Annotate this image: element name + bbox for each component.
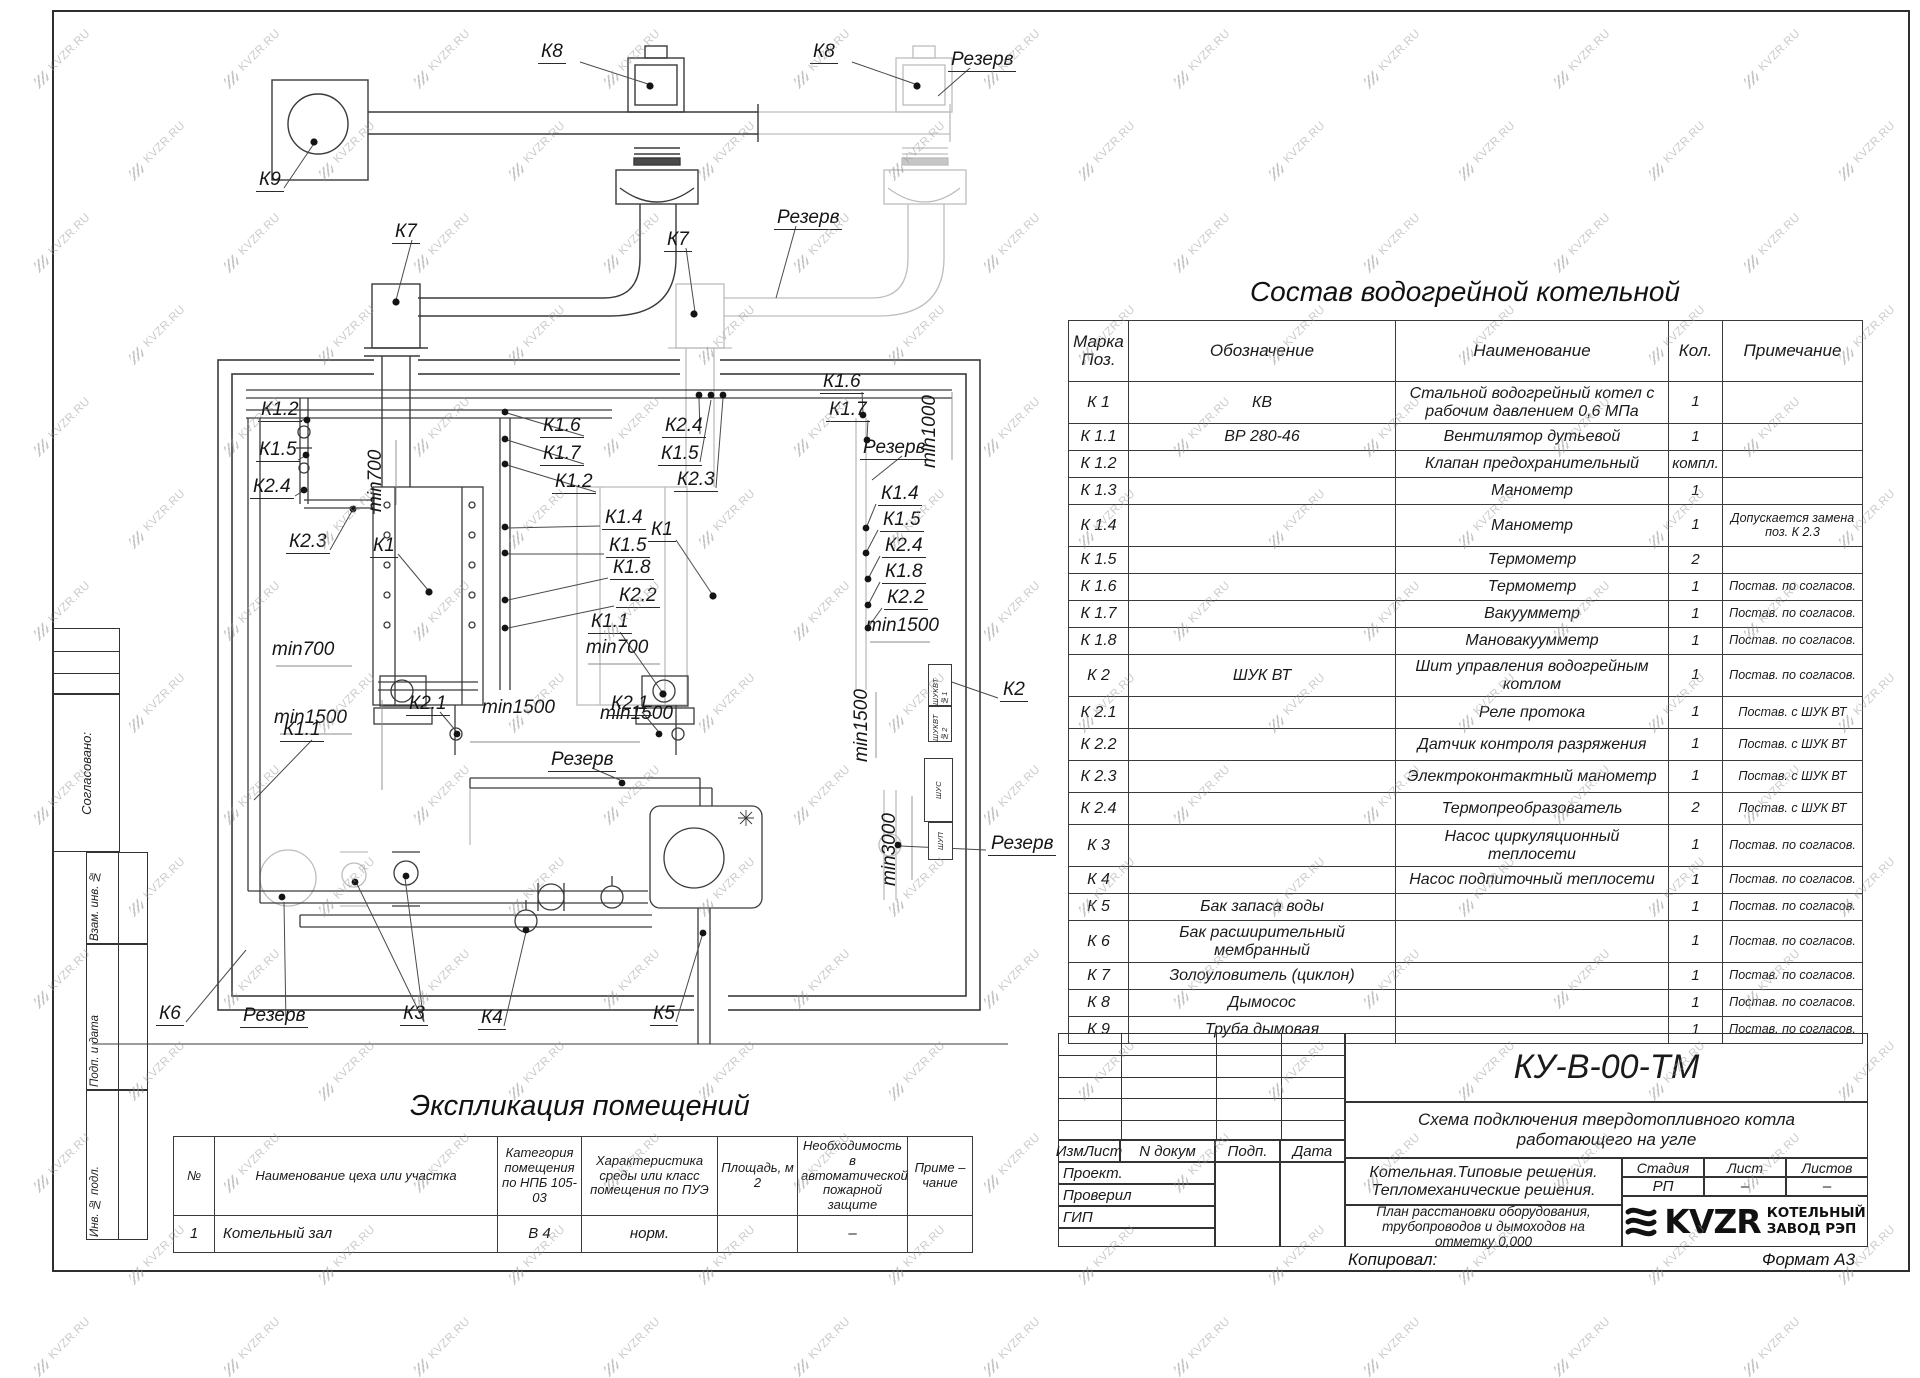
sostav-cell (1129, 825, 1396, 867)
diagram-label: К2.3 (674, 470, 718, 492)
sostav-cell: Термометр (1396, 547, 1669, 574)
sostav-row: К 2.4Термопреобразователь2Постав. с ШУК … (1069, 793, 1863, 825)
hatch-icon (223, 1357, 239, 1378)
sostav-row: К 3Насос циркуляционный теплосети1Постав… (1069, 825, 1863, 867)
sostav-cell: Постав. по согласов. (1723, 628, 1863, 655)
sostav-cell: К 6 (1069, 921, 1129, 963)
sostav-cell: Датчик контроля разряжения (1396, 729, 1669, 761)
sostav-cell: Постав. по согласов. (1723, 825, 1863, 867)
sostav-cell (1129, 793, 1396, 825)
stamp-stage-header: Стадия (1622, 1158, 1704, 1177)
sostav-row: К 1КВСтальной водогрейный котел с рабочи… (1069, 382, 1863, 424)
sostav-row: К 1.3Манометр1 (1069, 478, 1863, 505)
sostav-cell: Электроконтактный манометр (1396, 761, 1669, 793)
stamp-col-izm: ИзмЛист (1058, 1140, 1120, 1162)
sostav-cell: Постав. по согласов. (1723, 574, 1863, 601)
drawing-sheet: { "watermark": {"text": "KVZR.RU"}, "sid… (0, 0, 1920, 1280)
watermark-text: KVZR.RU (1376, 1315, 1422, 1361)
diagram-label: min700 (366, 450, 385, 512)
sostav-cell: 1 (1669, 478, 1723, 505)
diagram-label: min700 (272, 640, 334, 659)
stamp-sheets-header: Листов (1786, 1158, 1868, 1177)
sostav-cell: К 1.5 (1069, 547, 1129, 574)
diagram-label: К1.6 (820, 372, 864, 394)
sostav-cell: 1 (1669, 382, 1723, 424)
hatch-icon (33, 1357, 49, 1378)
sostav-row: К 6Бак расширительный мембранный1Постав.… (1069, 921, 1863, 963)
explication-cell-area (718, 1216, 798, 1253)
sostav-cell: Постав. по согласов. (1723, 921, 1863, 963)
control-cabinet: ШУКВТ №2 (928, 706, 952, 742)
watermark-text: KVZR.RU (426, 1315, 472, 1361)
sostav-cell (1129, 761, 1396, 793)
hatch-icon (983, 1357, 999, 1378)
stamp-sheets-value: – (1786, 1177, 1868, 1196)
control-cabinet: ШУП (928, 822, 953, 860)
explication-header-env: Характеристика среды или класс помещения… (582, 1137, 718, 1216)
sostav-cell: Мановакуумметр (1396, 628, 1669, 655)
sostav-cell: 1 (1669, 574, 1723, 601)
diagram-label: Резерв (988, 834, 1056, 856)
diagram-label: min1000 (920, 395, 939, 468)
sostav-cell (1129, 867, 1396, 894)
explication-cell-fire: – (798, 1216, 908, 1253)
diagram-label: К2.2 (616, 586, 660, 608)
explication-header-category: Категория помещения по НПБ 105-03 (498, 1137, 582, 1216)
sostav-cell: Термометр (1396, 574, 1669, 601)
sostav-cell (1129, 697, 1396, 729)
sostav-cell: Постав. с ШУК ВТ (1723, 729, 1863, 761)
diagram-label: Резерв (774, 208, 842, 230)
kvzr-company-line1: КОТЕЛЬНЫЙ (1767, 1205, 1866, 1221)
diagram-label: К1.1 (588, 612, 632, 634)
sostav-cell: К 2.2 (1069, 729, 1129, 761)
stamp-copied-label: Копировал: (1348, 1250, 1437, 1270)
stamp-solution-1: Котельная.Типовые решения. (1369, 1164, 1597, 1182)
explication-cell-category: В 4 (498, 1216, 582, 1253)
kvzr-watermark: KVZR.RU (792, 1315, 853, 1376)
stamp-empty-sign (1215, 1162, 1280, 1247)
sostav-cell: Реле протока (1396, 697, 1669, 729)
sostav-cell (1129, 729, 1396, 761)
sostav-header-row: Марка Поз. Обозначение Наименование Кол.… (1069, 321, 1863, 382)
watermark-text: KVZR.RU (616, 1315, 662, 1361)
sostav-row: К 1.7Вакуумметр1Постав. по согласов. (1069, 601, 1863, 628)
stamp-format-label: Формат А3 (1762, 1250, 1855, 1270)
kvzr-watermark: KVZR.RU (602, 1315, 663, 1376)
sostav-row: К 2.1Реле протока1Постав. с ШУК ВТ (1069, 697, 1863, 729)
sostav-cell: Золоуловитель (циклон) (1129, 963, 1396, 990)
sostav-cell: К 4 (1069, 867, 1129, 894)
sostav-cell (1723, 382, 1863, 424)
sostav-cell: Насос циркуляционный теплосети (1396, 825, 1669, 867)
sostav-cell: Вентилятор дутьевой (1396, 424, 1669, 451)
diagram-label: К8 (810, 42, 838, 64)
explication-table: № Наименование цеха или участка Категори… (173, 1136, 973, 1253)
diagram-label: Резерв (548, 750, 616, 772)
hatch-icon (793, 1357, 809, 1378)
sostav-cell: Допускается замена поз. К 2.3 (1723, 505, 1863, 547)
diagram-label: Резерв (240, 1006, 308, 1028)
kvzr-watermark: KVZR.RU (32, 1315, 93, 1376)
stamp-col-podp: Подп. (1215, 1140, 1280, 1162)
diagram-label: К2.4 (662, 416, 706, 438)
kvzr-company-name: КОТЕЛЬНЫЙ ЗАВОД РЭП (1767, 1206, 1866, 1237)
diagram-label: К1.7 (826, 400, 870, 422)
sostav-cell: ВР 280-46 (1129, 424, 1396, 451)
sostav-header-mark: Марка Поз. (1069, 321, 1129, 382)
sostav-cell (1396, 921, 1669, 963)
sostav-table: Марка Поз. Обозначение Наименование Кол.… (1068, 320, 1863, 1044)
watermark-text: KVZR.RU (1566, 1315, 1612, 1361)
diagram-label: К1.5 (606, 536, 650, 558)
stamp-col-data: Дата (1280, 1140, 1345, 1162)
sostav-row: К 2.2Датчик контроля разряжения1Постав. … (1069, 729, 1863, 761)
stamp-doc-title: Схема подключения твердотопливного котла… (1345, 1102, 1868, 1158)
hatch-icon (1743, 1357, 1759, 1378)
sostav-cell (1723, 478, 1863, 505)
diagram-label: К1.7 (540, 444, 584, 466)
explication-cell-note (908, 1216, 973, 1253)
sostav-cell: 1 (1669, 628, 1723, 655)
diagram-label: К5 (650, 1004, 678, 1026)
control-cabinet-label: ШУП (936, 832, 945, 850)
sostav-cell (1396, 990, 1669, 1017)
diagram-label: К7 (392, 222, 420, 244)
diagram-label: К2.2 (884, 588, 928, 610)
explication-header-fire: Необходимость в автоматической пожарной … (798, 1137, 908, 1216)
sostav-cell: К 1.7 (1069, 601, 1129, 628)
explication-header-row: № Наименование цеха или участка Категори… (174, 1137, 973, 1216)
explication-cell-env: норм. (582, 1216, 718, 1253)
sostav-cell (1723, 424, 1863, 451)
diagram-label: К1.6 (540, 416, 584, 438)
sostav-header-designation: Обозначение (1129, 321, 1396, 382)
stamp-role-gip: ГИП (1058, 1206, 1215, 1228)
sostav-cell: К 1 (1069, 382, 1129, 424)
sostav-table-title: Состав водогрейной котельной (1068, 276, 1862, 308)
sostav-row: К 1.1ВР 280-46Вентилятор дутьевой1 (1069, 424, 1863, 451)
diagram-label: К1.1 (280, 720, 324, 742)
sostav-cell: КВ (1129, 382, 1396, 424)
sidebar-grid (52, 628, 120, 694)
watermark-text: KVZR.RU (806, 1315, 852, 1361)
sostav-cell: компл. (1669, 451, 1723, 478)
diagram-label: К1.8 (610, 558, 654, 580)
kvzr-logo-text: KVZR (1664, 1202, 1760, 1241)
diagram-label: min1500 (866, 616, 939, 635)
sostav-row: К 2ШУК ВТШит управления водогрейным котл… (1069, 655, 1863, 697)
kvzr-watermark: KVZR.RU (982, 1315, 1043, 1376)
sostav-row: К 8Дымосос1Постав. по согласов. (1069, 990, 1863, 1017)
sostav-cell: Постав. по согласов. (1723, 990, 1863, 1017)
stamp-plan-title: План расстановки оборудования, трубопров… (1345, 1205, 1622, 1247)
kvzr-watermark: KVZR.RU (1552, 1315, 1613, 1376)
diagram-label: К3 (400, 1004, 428, 1026)
diagram-label: К2.4 (882, 536, 926, 558)
sostav-cell: К 2 (1069, 655, 1129, 697)
sostav-cell: 1 (1669, 601, 1723, 628)
stamp-logo-cell: KVZR КОТЕЛЬНЫЙ ЗАВОД РЭП (1622, 1196, 1868, 1247)
diagram-label: К1.5 (658, 444, 702, 466)
sidebar-box-vzam-label: Взам. инв. № (89, 857, 101, 941)
sostav-cell (1396, 894, 1669, 921)
control-cabinet-label: ШУКВТ №2 (931, 707, 949, 741)
stamp-role-proekt: Проект. (1058, 1162, 1215, 1184)
sostav-cell: 1 (1669, 825, 1723, 867)
watermark-text: KVZR.RU (46, 1315, 92, 1361)
diagram-label: min1500 (482, 698, 555, 717)
diagram-label: min3000 (880, 813, 899, 886)
sostav-cell: Постав. по согласов. (1723, 867, 1863, 894)
sostav-row: К 4Насос подпиточный теплосети1Постав. п… (1069, 867, 1863, 894)
kvzr-company-line2: ЗАВОД РЭП (1767, 1221, 1857, 1237)
sostav-cell: 1 (1669, 894, 1723, 921)
diagram-label: К2.3 (286, 532, 330, 554)
stamp-sheet-value: – (1704, 1177, 1786, 1196)
watermark-text: KVZR.RU (1186, 1315, 1232, 1361)
sostav-cell: К 1.6 (1069, 574, 1129, 601)
sostav-cell: Постав. по согласов. (1723, 894, 1863, 921)
sostav-cell: К 1.3 (1069, 478, 1129, 505)
sostav-cell: Насос подпиточный теплосети (1396, 867, 1669, 894)
sostav-cell (1129, 478, 1396, 505)
diagram-label: К6 (156, 1004, 184, 1026)
diagram-label: К1.2 (552, 472, 596, 494)
sostav-cell: 1 (1669, 921, 1723, 963)
watermark-text: KVZR.RU (236, 1315, 282, 1361)
sostav-cell: К 1.1 (1069, 424, 1129, 451)
stamp-role-proveril: Проверил (1058, 1184, 1215, 1206)
sostav-cell: 1 (1669, 655, 1723, 697)
sostav-cell: Постав. по согласов. (1723, 655, 1863, 697)
diagram-label: К2.1 (608, 694, 652, 716)
sostav-cell: Вакуумметр (1396, 601, 1669, 628)
diagram-label: Резерв (948, 50, 1016, 72)
sostav-cell (1129, 601, 1396, 628)
diagram-label: min1500 (852, 689, 871, 762)
explication-header-num: № (174, 1137, 215, 1216)
sostav-cell: Постав. с ШУК ВТ (1723, 761, 1863, 793)
sostav-header-note: Примечание (1723, 321, 1863, 382)
kvzr-watermark: KVZR.RU (1362, 1315, 1423, 1376)
explication-header-area: Площадь, м 2 (718, 1137, 798, 1216)
explication-cell-name: Котельный зал (215, 1216, 498, 1253)
sostav-cell: Клапан предохранительный (1396, 451, 1669, 478)
sostav-cell: 1 (1669, 505, 1723, 547)
hatch-icon (413, 1357, 429, 1378)
diagram-label: К1.8 (882, 562, 926, 584)
sostav-row: К 1.5Термометр2 (1069, 547, 1863, 574)
stamp-empty-role (1058, 1228, 1215, 1247)
sostav-header-name: Наименование (1396, 321, 1669, 382)
sostav-cell (1723, 547, 1863, 574)
sostav-cell: К 2.1 (1069, 697, 1129, 729)
sostav-cell: К 1.8 (1069, 628, 1129, 655)
sostav-cell (1396, 963, 1669, 990)
sostav-cell: К 1.2 (1069, 451, 1129, 478)
sostav-row: К 5Бак запаса воды1Постав. по согласов. (1069, 894, 1863, 921)
sostav-cell: 1 (1669, 729, 1723, 761)
sostav-cell: 1 (1669, 867, 1723, 894)
stamp-col-ndoc: N докум (1120, 1140, 1215, 1162)
sostav-cell: Термопреобразователь (1396, 793, 1669, 825)
watermark-text: KVZR.RU (1756, 1315, 1802, 1361)
sostav-cell (1129, 505, 1396, 547)
diagram-label: К9 (256, 170, 284, 192)
control-cabinet: ШУКВТ №1 (928, 664, 952, 706)
stamp-empty-date (1280, 1162, 1345, 1247)
sidebar-agreed-label: Согласовано: (79, 732, 94, 815)
sostav-cell (1129, 547, 1396, 574)
sostav-cell: Постав. по согласов. (1723, 963, 1863, 990)
sostav-cell: 1 (1669, 761, 1723, 793)
explication-title: Экспликация помещений (300, 1090, 860, 1123)
sostav-row: К 1.6Термометр1Постав. по согласов. (1069, 574, 1863, 601)
diagram-label: К1.4 (878, 484, 922, 506)
control-cabinet-label: ШУКВТ №1 (931, 665, 949, 705)
diagram-label: К8 (538, 42, 566, 64)
sostav-row: К 2.3Электроконтактный манометр1Постав. … (1069, 761, 1863, 793)
diagram-label: К4 (478, 1008, 506, 1030)
stamp-empty-grid (1058, 1033, 1345, 1140)
kvzr-logo-icon (1624, 1205, 1658, 1239)
stamp-sheet-header: Лист (1704, 1158, 1786, 1177)
sostav-cell: 1 (1669, 424, 1723, 451)
sostav-cell (1129, 628, 1396, 655)
sostav-cell: 2 (1669, 547, 1723, 574)
diagram-label: К1.2 (258, 400, 302, 422)
hatch-icon (1553, 1357, 1569, 1378)
sostav-cell: Дымосос (1129, 990, 1396, 1017)
sostav-cell (1129, 574, 1396, 601)
sostav-row: К 1.8Мановакуумметр1Постав. по согласов. (1069, 628, 1863, 655)
sidebar-box-inv-label: Инв. № подл. (89, 1095, 101, 1237)
sostav-row: К 1.2Клапан предохранительныйкомпл. (1069, 451, 1863, 478)
explication-cell-num: 1 (174, 1216, 215, 1253)
hatch-icon (603, 1357, 619, 1378)
sostav-cell: Манометр (1396, 505, 1669, 547)
sidebar-box-podp: Подп. и дата (86, 944, 148, 1090)
diagram-label: min700 (586, 638, 648, 657)
diagram-label: К1 (648, 520, 676, 542)
diagram-label: К1 (370, 536, 398, 558)
sostav-cell: Бак расширительный мембранный (1129, 921, 1396, 963)
diagram-label: К2.1 (406, 694, 450, 716)
sostav-cell: К 2.3 (1069, 761, 1129, 793)
diagram-label: К1.5 (256, 440, 300, 462)
sostav-cell: Манометр (1396, 478, 1669, 505)
sostav-cell: К 8 (1069, 990, 1129, 1017)
diagram-label: К2.4 (250, 477, 294, 499)
kvzr-watermark: KVZR.RU (222, 1315, 283, 1376)
stamp-solutions: Котельная.Типовые решения. Тепломеханиче… (1345, 1158, 1622, 1205)
sostav-cell: 1 (1669, 990, 1723, 1017)
sidebar-agreed-box: Согласовано: (52, 694, 120, 852)
sidebar-box-podp-label: Подп. и дата (89, 949, 101, 1087)
explication-header-name: Наименование цеха или участка (215, 1137, 498, 1216)
sostav-row: К 1.4Манометр1Допускается замена поз. К … (1069, 505, 1863, 547)
stamp-solution-2: Тепломеханические решения. (1372, 1182, 1596, 1200)
sostav-cell: К 1.4 (1069, 505, 1129, 547)
sostav-cell (1129, 451, 1396, 478)
diagram-label: К2 (1000, 680, 1028, 702)
sostav-row: К 7Золоуловитель (циклон)1Постав. по сог… (1069, 963, 1863, 990)
sostav-cell: 2 (1669, 793, 1723, 825)
diagram-label: К1.4 (602, 508, 646, 530)
sostav-cell: Постав. по согласов. (1723, 601, 1863, 628)
sostav-cell (1723, 451, 1863, 478)
sostav-cell: К 7 (1069, 963, 1129, 990)
control-cabinet-label: ШУС (934, 781, 943, 799)
hatch-icon (1173, 1357, 1189, 1378)
sostav-cell: 1 (1669, 963, 1723, 990)
kvzr-watermark: KVZR.RU (1172, 1315, 1233, 1376)
sostav-cell: Постав. с ШУК ВТ (1723, 697, 1863, 729)
sostav-cell: Шит управления водогрейным котлом (1396, 655, 1669, 697)
hatch-icon (1363, 1357, 1379, 1378)
sostav-cell: Постав. с ШУК ВТ (1723, 793, 1863, 825)
sostav-cell: К 3 (1069, 825, 1129, 867)
title-block: ИзмЛист N докум Подп. Дата Проект. Прове… (1058, 1033, 1868, 1247)
sostav-cell: ШУК ВТ (1129, 655, 1396, 697)
explication-header-note: Приме – чание (908, 1137, 973, 1216)
sostav-cell: Стальной водогрейный котел с рабочим дав… (1396, 382, 1669, 424)
stamp-stage-value: РП (1622, 1177, 1704, 1196)
sidebar-box-inv: Инв. № подл. (86, 1090, 148, 1240)
sostav-cell: 1 (1669, 697, 1723, 729)
sostav-cell: Бак запаса воды (1129, 894, 1396, 921)
diagram-label: К7 (664, 230, 692, 252)
sostav-cell: К 2.4 (1069, 793, 1129, 825)
explication-data-row: 1 Котельный зал В 4 норм. – (174, 1216, 973, 1253)
stamp-doc-code: КУ-В-00-ТМ (1345, 1033, 1868, 1102)
sostav-header-qty: Кол. (1669, 321, 1723, 382)
watermark-text: KVZR.RU (996, 1315, 1042, 1361)
sidebar-box-vzam: Взам. инв. № (86, 852, 148, 944)
control-cabinet: ШУС (924, 758, 953, 822)
kvzr-watermark: KVZR.RU (1742, 1315, 1803, 1376)
kvzr-watermark: KVZR.RU (412, 1315, 473, 1376)
diagram-label: К1.5 (880, 510, 924, 532)
sostav-cell: К 5 (1069, 894, 1129, 921)
